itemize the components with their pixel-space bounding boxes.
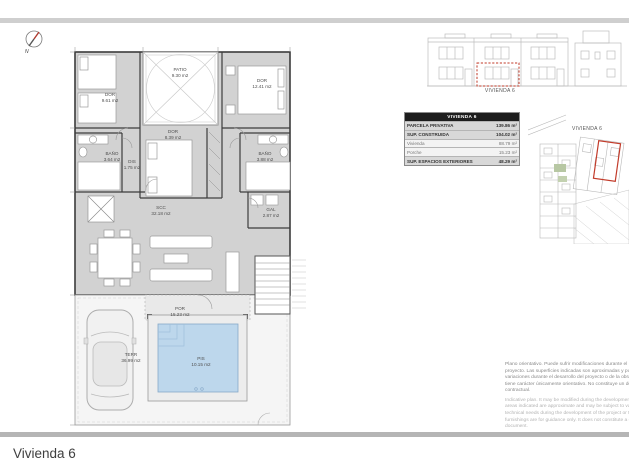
elevation-unit-highlight <box>477 63 519 86</box>
row-value: 15.23 m² <box>499 150 517 155</box>
exterior-stairs-hatch <box>292 260 306 308</box>
elevation-facade <box>427 31 627 86</box>
room-label-dor-2: DOR <box>257 78 268 83</box>
table-row: Vivienda 88.79 m² <box>405 139 519 148</box>
disclaimer-spanish: Plano orientativo. Puede sufrir modifica… <box>505 362 629 395</box>
row-label: Vivienda <box>407 141 425 146</box>
room-label-dor-1: DOR <box>105 92 116 97</box>
row-value: 104.02 m² <box>496 132 517 137</box>
table-row: SUP. ESPACIOS EXTERIORES 48.29 m² <box>405 156 519 165</box>
row-label: SUP. CONSTRUIDA <box>407 132 449 137</box>
bedroom3-bed <box>146 140 192 196</box>
row-label: PARCELA PRIVATIVA <box>407 123 453 128</box>
compass-north-label: N <box>25 49 29 55</box>
room-label-terr: TERR <box>125 352 138 357</box>
room-label-por: POR <box>175 306 186 311</box>
disclaimer-block: Plano orientativo. Puede sufrir modifica… <box>505 362 629 434</box>
room-label-gal: GAL <box>266 207 276 212</box>
room-area-pis: 10.15 m2 <box>191 362 211 367</box>
site-plan: VIVIENDA 6 <box>528 112 629 244</box>
bottom-divider-bar <box>0 432 629 437</box>
stairs <box>255 256 290 314</box>
room-label-scc: SCC <box>156 205 166 210</box>
room-label-bano-1: BAÑO <box>105 150 118 156</box>
room-area-bano-1: 3.64 m2 <box>104 157 121 162</box>
room-label-bano-2: BAÑO <box>258 150 271 156</box>
room-label-dis: DIS <box>128 159 136 164</box>
elevation-drawing <box>425 25 629 87</box>
room-label-pis: PIS <box>197 356 204 361</box>
site-unit-highlight <box>593 141 620 182</box>
room-area-gal: 2.87 m2 <box>263 213 280 218</box>
page-title: Vivienda 6 <box>13 446 76 461</box>
site-green-patch <box>554 164 566 172</box>
room-area-dor-1: 9.61 m2 <box>102 98 119 103</box>
floor-plan-drawing: DOR 9.61 m2 PATIO 9.30 m2 DOR 12.41 m2 B… <box>58 38 310 430</box>
bedroom1-beds <box>78 55 116 123</box>
shower-square <box>88 196 114 222</box>
site-green-patch <box>558 176 567 182</box>
room-area-scc: 32.18 m2 <box>151 211 171 216</box>
disclaimer-english: Indicative plan. It may be modified duri… <box>505 398 629 431</box>
table-row: SUP. CONSTRUIDA 104.02 m² <box>405 130 519 139</box>
row-label: Porche <box>407 150 422 155</box>
row-label: SUP. ESPACIOS EXTERIORES <box>407 159 473 164</box>
room-area-dor-2: 12.41 m2 <box>252 84 272 89</box>
patio-court <box>143 52 218 125</box>
plan-sheet: N <box>0 0 629 476</box>
row-value: 139.86 m² <box>496 123 517 128</box>
room-area-bano-2: 3.88 m2 <box>257 157 274 162</box>
room-label-patio: PATIO <box>173 67 187 72</box>
room-area-dis: 1.75 m2 <box>124 165 141 170</box>
room-area-por: 15.23 m2 <box>170 312 190 317</box>
row-value: 48.29 m² <box>499 159 517 164</box>
room-area-dor-3: 8.39 m2 <box>165 135 182 140</box>
kitchen-counter <box>226 252 239 292</box>
room-area-patio: 9.30 m2 <box>172 73 189 78</box>
site-plan-caption: VIVIENDA 6 <box>572 126 602 132</box>
room-area-terr: 36.99 m2 <box>121 358 141 363</box>
top-divider-bar <box>0 18 629 23</box>
site-blocks <box>528 115 629 244</box>
table-row: PARCELA PRIVATIVA 139.86 m² <box>405 121 519 130</box>
row-value: 88.79 m² <box>499 141 517 146</box>
table-row: Porche 15.23 m² <box>405 147 519 156</box>
table-header: VIVIENDA 6 <box>405 113 519 121</box>
north-compass-icon: N <box>20 26 48 60</box>
surface-summary-table: VIVIENDA 6 PARCELA PRIVATIVA 139.86 m² S… <box>404 112 520 166</box>
elevation-caption: VIVIENDA 6 <box>477 88 523 94</box>
site-hatch <box>574 198 629 244</box>
room-label-dor-3: DOR <box>168 129 179 134</box>
